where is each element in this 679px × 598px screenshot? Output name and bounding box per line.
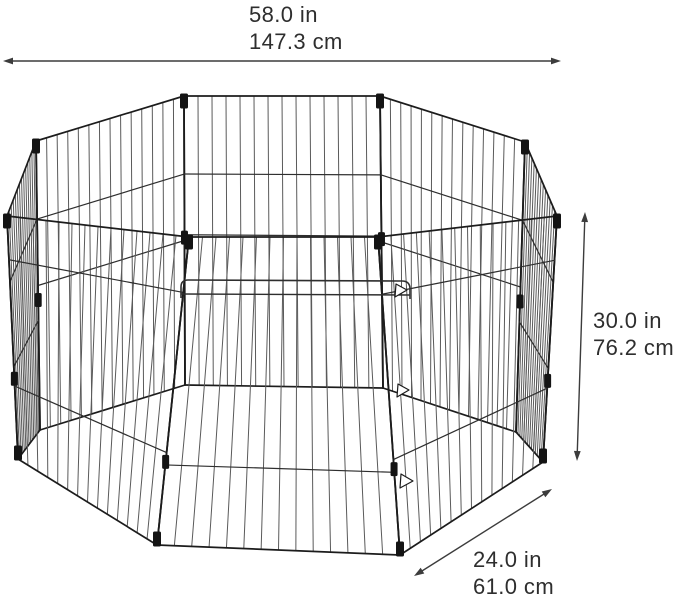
height-dimension-label: 30.0 in 76.2 cm [593,307,674,361]
panel-cm-text: 61.0 cm [473,573,554,598]
height-inches-text: 30.0 in [593,307,674,334]
panel-inches-text: 24.0 in [473,546,554,573]
height-cm-text: 76.2 cm [593,334,674,361]
dimension-diagram: 58.0 in 147.3 cm 30.0 in 76.2 cm 24.0 in… [0,0,679,598]
width-dimension-label: 58.0 in 147.3 cm [249,1,343,55]
width-inches-text: 58.0 in [249,1,343,28]
width-cm-text: 147.3 cm [249,28,343,55]
panel-width-dimension-label: 24.0 in 61.0 cm [473,546,554,598]
playpen-illustration [0,0,679,598]
